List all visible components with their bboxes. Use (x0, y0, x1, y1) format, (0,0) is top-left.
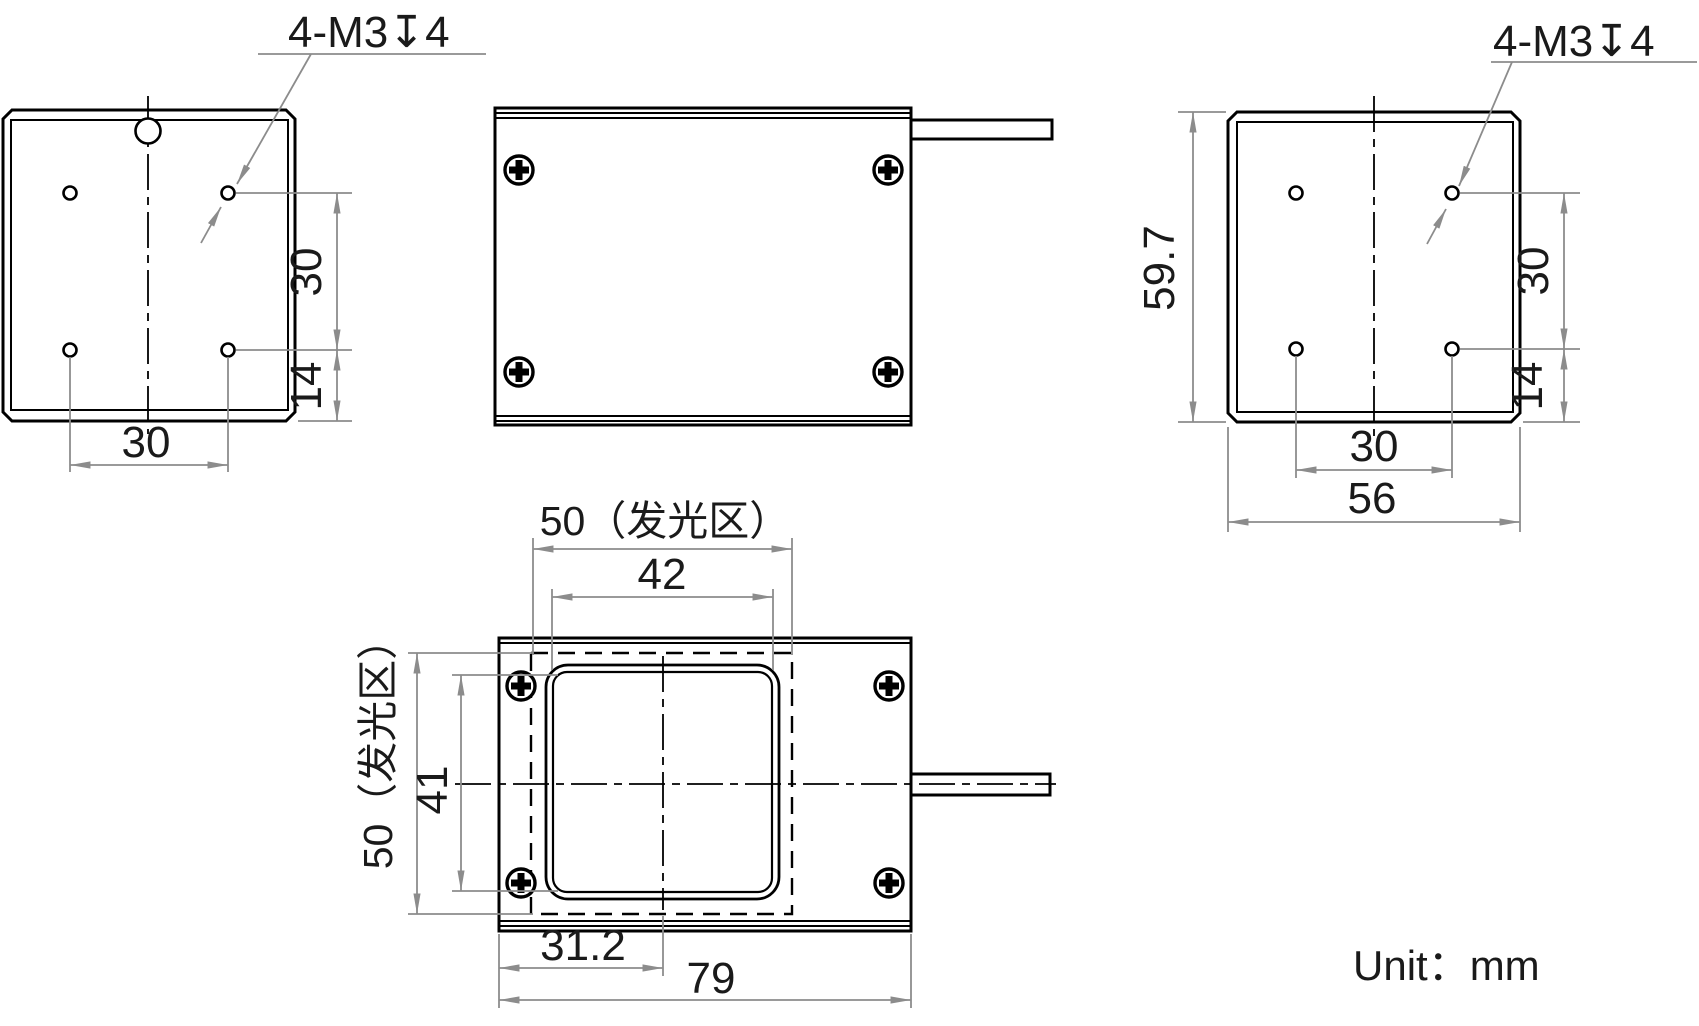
dim-window-width-label: 42 (638, 550, 687, 599)
thread-label: 4-M3↧4 (1493, 17, 1655, 66)
mounting-hole (1446, 187, 1459, 200)
dim-hole-to-bottom-label: 14 (1503, 362, 1552, 411)
dim-hole-spacing-vertical-label: 30 (282, 248, 331, 297)
dim-cable-axis-offset-label: 31.2 (540, 921, 626, 970)
dim-body-height-label: 59.7 (1135, 225, 1184, 311)
unit-note: Unit：mm (1353, 942, 1540, 989)
screw-cross-head (874, 358, 902, 386)
mounting-hole (1290, 343, 1303, 356)
device-inner-face (1237, 122, 1513, 412)
thread-leader-line (1459, 62, 1512, 186)
dim-hole-to-bottom-label: 14 (282, 362, 331, 411)
drawing-canvas: 4-M3↧4 30 14 30 (0, 0, 1699, 1026)
screw-cross-head (505, 156, 533, 184)
mounting-hole (64, 344, 77, 357)
front-view: 50（发光区） 42 50（发光区） 41 31.2 79 (355, 498, 1056, 1008)
dim-hole-spacing-horizontal-label: 30 (122, 418, 171, 467)
mounting-hole (1446, 343, 1459, 356)
dim-emitting-height-label: 50（发光区） (355, 619, 401, 870)
dim-emitting-width-label: 50（发光区） (540, 498, 791, 544)
dim-body-width-label: 79 (687, 954, 736, 1003)
thread-leader-stub (1427, 209, 1446, 244)
mounting-hole (1290, 187, 1303, 200)
device-outline (495, 108, 911, 425)
dim-hole-spacing-horizontal-label: 30 (1350, 422, 1399, 471)
mounting-hole (222, 187, 235, 200)
device-inner-face (11, 120, 288, 410)
dim-window-height-label: 41 (408, 766, 457, 815)
thread-label: 4-M3↧4 (288, 8, 450, 57)
technical-drawing-page: 4-M3↧4 30 14 30 (0, 0, 1699, 1026)
screw-cross-head (505, 358, 533, 386)
screw-cross-head (874, 156, 902, 184)
screw-cross-head (875, 869, 903, 897)
side-view (495, 108, 1052, 425)
mounting-hole (64, 187, 77, 200)
thread-leader-stub (201, 207, 221, 243)
device-outline (3, 110, 295, 421)
mounting-hole (222, 344, 235, 357)
screw-cross-head (875, 672, 903, 700)
dim-body-width-label: 56 (1348, 474, 1397, 523)
screw-cross-head (507, 672, 535, 700)
back-view-right: 4-M3↧4 59.7 30 14 30 56 (1135, 17, 1697, 532)
cable (911, 120, 1052, 139)
dim-hole-spacing-vertical-label: 30 (1509, 247, 1558, 296)
screw-cross-head (507, 869, 535, 897)
back-view-left: 4-M3↧4 30 14 30 (3, 8, 486, 472)
top-center-hole (136, 119, 161, 144)
